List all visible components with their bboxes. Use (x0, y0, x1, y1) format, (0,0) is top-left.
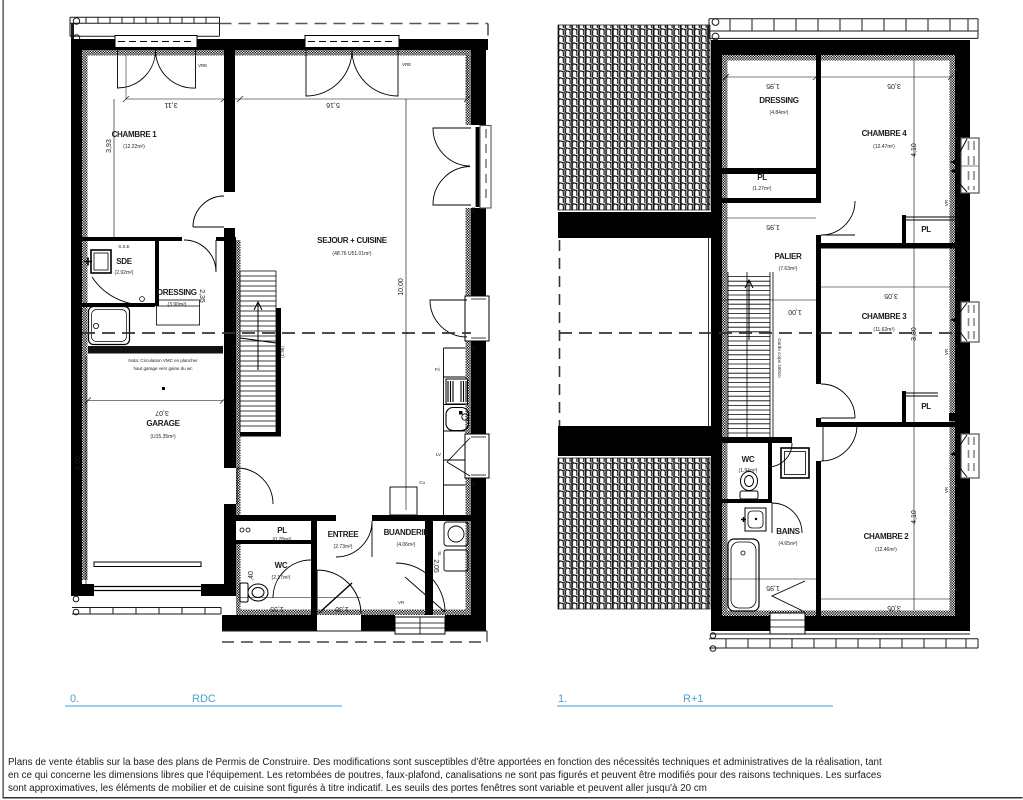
svg-text:CHAMBRE 2: CHAMBRE 2 (864, 532, 910, 541)
svg-text:1,95: 1,95 (766, 584, 780, 591)
svg-text:(4.84m²): (4.84m²) (770, 110, 789, 116)
svg-text:2,05: 2,05 (432, 559, 439, 573)
svg-text:(4.65m²): (4.65m²) (779, 541, 798, 547)
svg-text:CHAMBRE 3: CHAMBRE 3 (862, 312, 908, 321)
svg-text:DRESSING: DRESSING (157, 288, 196, 297)
svg-text:Plans de vente établis sur la: Plans de vente établis sur la base des p… (8, 757, 882, 768)
svg-text:(48.76 U51.01m²): (48.76 U51.01m²) (332, 251, 372, 257)
svg-text:VR: VR (944, 199, 949, 206)
svg-text:WC: WC (742, 455, 755, 464)
svg-text:PL: PL (921, 402, 931, 411)
svg-text:RDC: RDC (192, 693, 216, 705)
svg-text:1,00: 1,00 (788, 308, 802, 315)
svg-text:0.: 0. (70, 693, 79, 705)
svg-text:3,11: 3,11 (164, 101, 177, 108)
svg-text:(7.63m²): (7.63m²) (779, 266, 798, 272)
svg-text:VR: VR (471, 206, 476, 213)
svg-text:(U15.35m²): (U15.35m²) (150, 434, 176, 440)
svg-text:1,95: 1,95 (766, 82, 780, 89)
svg-text:(2.73m²): (2.73m²) (334, 544, 353, 550)
svg-text:(12.47m²): (12.47m²) (873, 144, 895, 150)
svg-text:3,05: 3,05 (887, 604, 901, 611)
svg-text:3,05: 3,05 (887, 82, 901, 89)
svg-text:PL: PL (921, 225, 931, 234)
svg-text:WC: WC (275, 561, 288, 570)
svg-text:VR: VR (471, 344, 476, 351)
svg-text:BAINS: BAINS (776, 527, 800, 536)
svg-text:(12.22m²): (12.22m²) (123, 144, 145, 150)
svg-text:R+1: R+1 (683, 693, 704, 705)
svg-text:(0.78m²): (0.78m²) (273, 537, 292, 543)
svg-text:(2.17m²): (2.17m²) (272, 575, 291, 581)
svg-text:(12.46m²): (12.46m²) (875, 547, 897, 553)
svg-text:(1.94m²): (1.94m²) (739, 468, 758, 474)
svg-text:BUANDERIE: BUANDERIE (384, 528, 430, 537)
svg-text:5,16: 5,16 (326, 101, 340, 108)
svg-text:(1.27m²): (1.27m²) (753, 186, 772, 192)
svg-text:GARAGE: GARAGE (146, 419, 180, 428)
svg-text:en ce qui concerne les dimensi: en ce qui concerne les dimensions libres… (8, 770, 881, 781)
svg-text:4,10: 4,10 (911, 510, 918, 524)
svg-text:PL: PL (757, 173, 767, 182)
svg-text:SEJOUR + CUISINE: SEJOUR + CUISINE (317, 236, 388, 245)
svg-text:ENTREE: ENTREE (328, 530, 360, 539)
svg-text:1,95: 1,95 (766, 223, 780, 230)
svg-text:DRESSING: DRESSING (759, 96, 798, 105)
svg-text:PALIER: PALIER (775, 252, 802, 261)
svg-text:3,80: 3,80 (911, 327, 918, 341)
svg-text:SL: SL (437, 551, 442, 557)
svg-text:2,35: 2,35 (198, 289, 205, 303)
svg-text:3,07: 3,07 (155, 409, 169, 416)
svg-text:CHAMBRE 1: CHAMBRE 1 (112, 130, 158, 139)
svg-text:4,10: 4,10 (911, 143, 918, 157)
svg-text:S.S.E: S.S.E (118, 244, 130, 249)
svg-text:Cu: Cu (419, 480, 425, 485)
svg-text:3,05: 3,05 (884, 292, 898, 299)
svg-text:VRE: VRE (402, 62, 411, 67)
svg-text:(3.90m²): (3.90m²) (168, 302, 187, 308)
svg-text:Fri: Fri (435, 367, 440, 372)
svg-text:VRE: VRE (198, 63, 207, 68)
svg-text:(2.92m²): (2.92m²) (115, 270, 134, 276)
svg-text:1,55: 1,55 (270, 605, 284, 612)
svg-text:10,00: 10,00 (398, 278, 405, 296)
svg-text:3,93: 3,93 (106, 139, 113, 153)
svg-text:sont approximatives, les éléme: sont approximatives, les éléments de mob… (8, 783, 707, 794)
svg-text:1.: 1. (558, 693, 567, 705)
svg-text:,40: ,40 (248, 571, 255, 581)
svg-text:CHAMBRE 4: CHAMBRE 4 (862, 129, 908, 138)
svg-text:(4.06m²): (4.06m²) (397, 542, 416, 548)
svg-text:(1.96): (1.96) (280, 346, 285, 358)
svg-text:Nota: Circulation VMC en planc: Nota: Circulation VMC en plancher (128, 358, 198, 363)
svg-text:1,30: 1,30 (335, 605, 349, 612)
svg-text:haut garage vers gaine du wc: haut garage vers gaine du wc (133, 366, 193, 371)
svg-text:VR: VR (944, 348, 949, 355)
svg-text:LV: LV (436, 452, 441, 457)
svg-text:VR: VR (944, 486, 949, 493)
svg-text:VR: VR (471, 480, 476, 487)
svg-text:PL: PL (277, 526, 287, 535)
svg-text:SDE: SDE (116, 257, 133, 266)
svg-text:(11.62m²): (11.62m²) (873, 327, 895, 333)
svg-text:5,00: 5,00 (75, 456, 82, 470)
svg-text:Garde corps 100cm: Garde corps 100cm (777, 338, 782, 378)
svg-text:VR: VR (398, 600, 405, 605)
